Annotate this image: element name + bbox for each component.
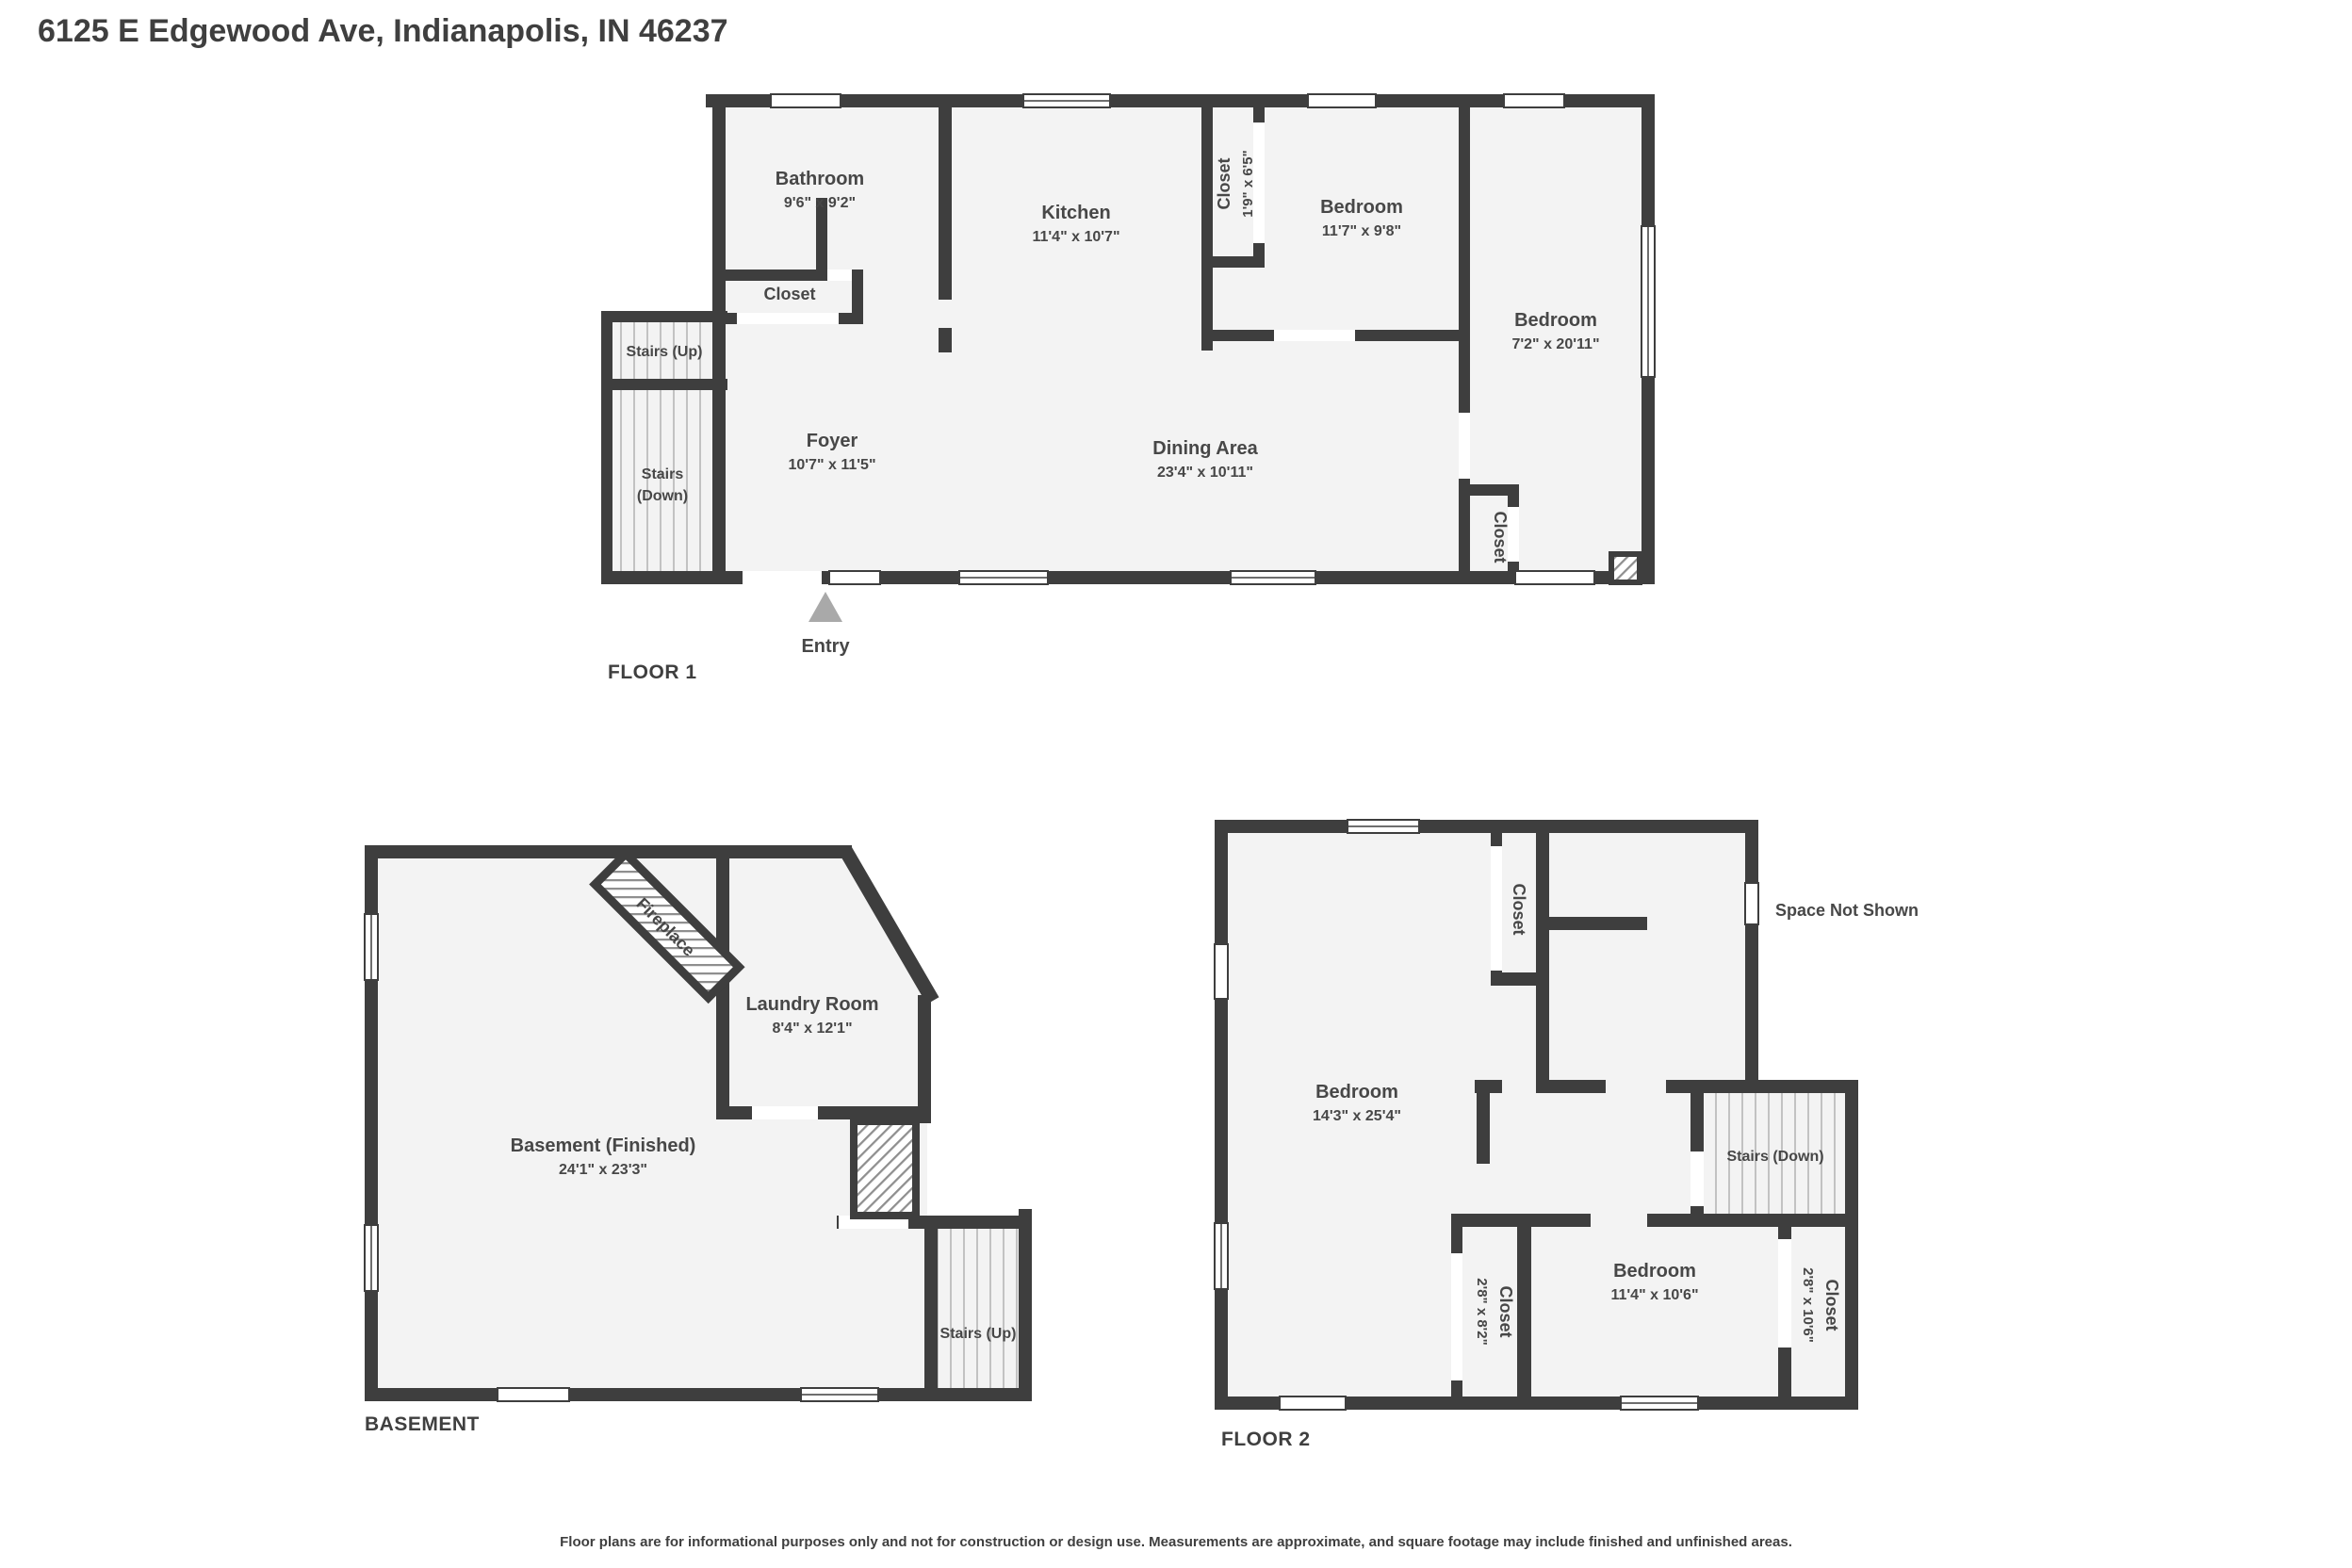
basement-laundry-label: Laundry Room [745,994,878,1015]
floor1-bathroom-dims: 9'6" x 9'2" [784,195,856,211]
floorplan-page: 6125 E Edgewood Ave, Indianapolis, IN 46… [0,0,2352,1568]
floor2-right-closet-dims: 2'8" x 10'6" [1800,1267,1816,1343]
floor1-stairs-down-label1: Stairs [642,466,684,482]
entry-marker-icon [808,592,842,622]
basement-main-dims: 24'1" x 23'3" [559,1162,647,1178]
floor2-left-closet-label: Closet [1496,1285,1515,1337]
floor2-left-closet-dims: 2'8" x 8'2" [1474,1278,1490,1345]
floor1-bedroom2-label: Bedroom [1514,310,1597,331]
floor1-entry-door-gap [743,571,822,584]
floor1-bedroom1-label: Bedroom [1320,197,1403,218]
floor1-dining-label: Dining Area [1152,438,1258,459]
basement-chimney-hatch [854,1121,916,1216]
floor1-bathroom-label: Bathroom [776,169,864,189]
basement-title: BASEMENT [365,1413,480,1435]
floor2-bedroom1-label: Bedroom [1315,1082,1398,1102]
floor1-plan: Bathroom 9'6" x 9'2" Kitchen 11'4" x 10'… [601,94,1655,683]
floor1-stairs-down-label2: (Down) [637,488,688,504]
floor1-kitchen-closet-dims: 1'9" x 6'5" [1240,150,1256,217]
floor2-plan: Bedroom 14'3" x 25'4" Closet Space Not S… [1215,820,1919,1450]
entry-label: Entry [801,636,850,657]
floor2-right-closet-label: Closet [1822,1279,1841,1331]
floor2-bedroom2-label: Bedroom [1613,1261,1696,1282]
floor1-hall-closet-label: Closet [763,285,815,303]
floor1-dining-closet-label: Closet [1491,511,1510,563]
floor2-bedroom1-dims: 14'3" x 25'4" [1313,1108,1401,1124]
basement-plan: Fireplace Laundry Room 8'4" x 12'1" Base… [365,845,1032,1435]
floor1-bedroom1-dims: 11'7" x 9'8" [1322,223,1401,239]
floor1-foyer-label: Foyer [807,431,858,451]
floor1-bedroom2-dims: 7'2" x 20'11" [1511,336,1599,352]
floor2-bedroom2-dims: 11'4" x 10'6" [1610,1287,1698,1303]
floor1-hatched-post [1611,554,1640,582]
floor1-kitchen-dims: 11'4" x 10'7" [1032,229,1119,245]
basement-stairs-treads [938,1229,1019,1388]
basement-main-label: Basement (Finished) [511,1135,696,1156]
basement-stairs-up-label: Stairs (Up) [940,1326,1017,1342]
basement-laundry-dims: 8'4" x 12'1" [772,1021,852,1037]
floor1-kitchen-label: Kitchen [1041,203,1110,223]
floor1-stairs-up-label: Stairs (Up) [627,344,703,360]
floor1-foyer-dims: 10'7" x 11'5" [788,457,875,473]
floor2-title: FLOOR 2 [1221,1429,1311,1450]
floorplan-canvas: Bathroom 9'6" x 9'2" Kitchen 11'4" x 10'… [0,0,2352,1568]
disclaimer-text: Floor plans are for informational purpos… [0,1534,2352,1550]
floor2-stairs-down-label: Stairs (Down) [1726,1149,1823,1165]
floor1-dining-dims: 23'4" x 10'11" [1157,465,1253,481]
floor2-space-not-shown-label: Space Not Shown [1775,901,1919,920]
floor1-kitchen-closet-label: Closet [1215,157,1233,209]
floor1-title: FLOOR 1 [608,661,697,683]
floor2-top-closet-label: Closet [1510,883,1528,935]
